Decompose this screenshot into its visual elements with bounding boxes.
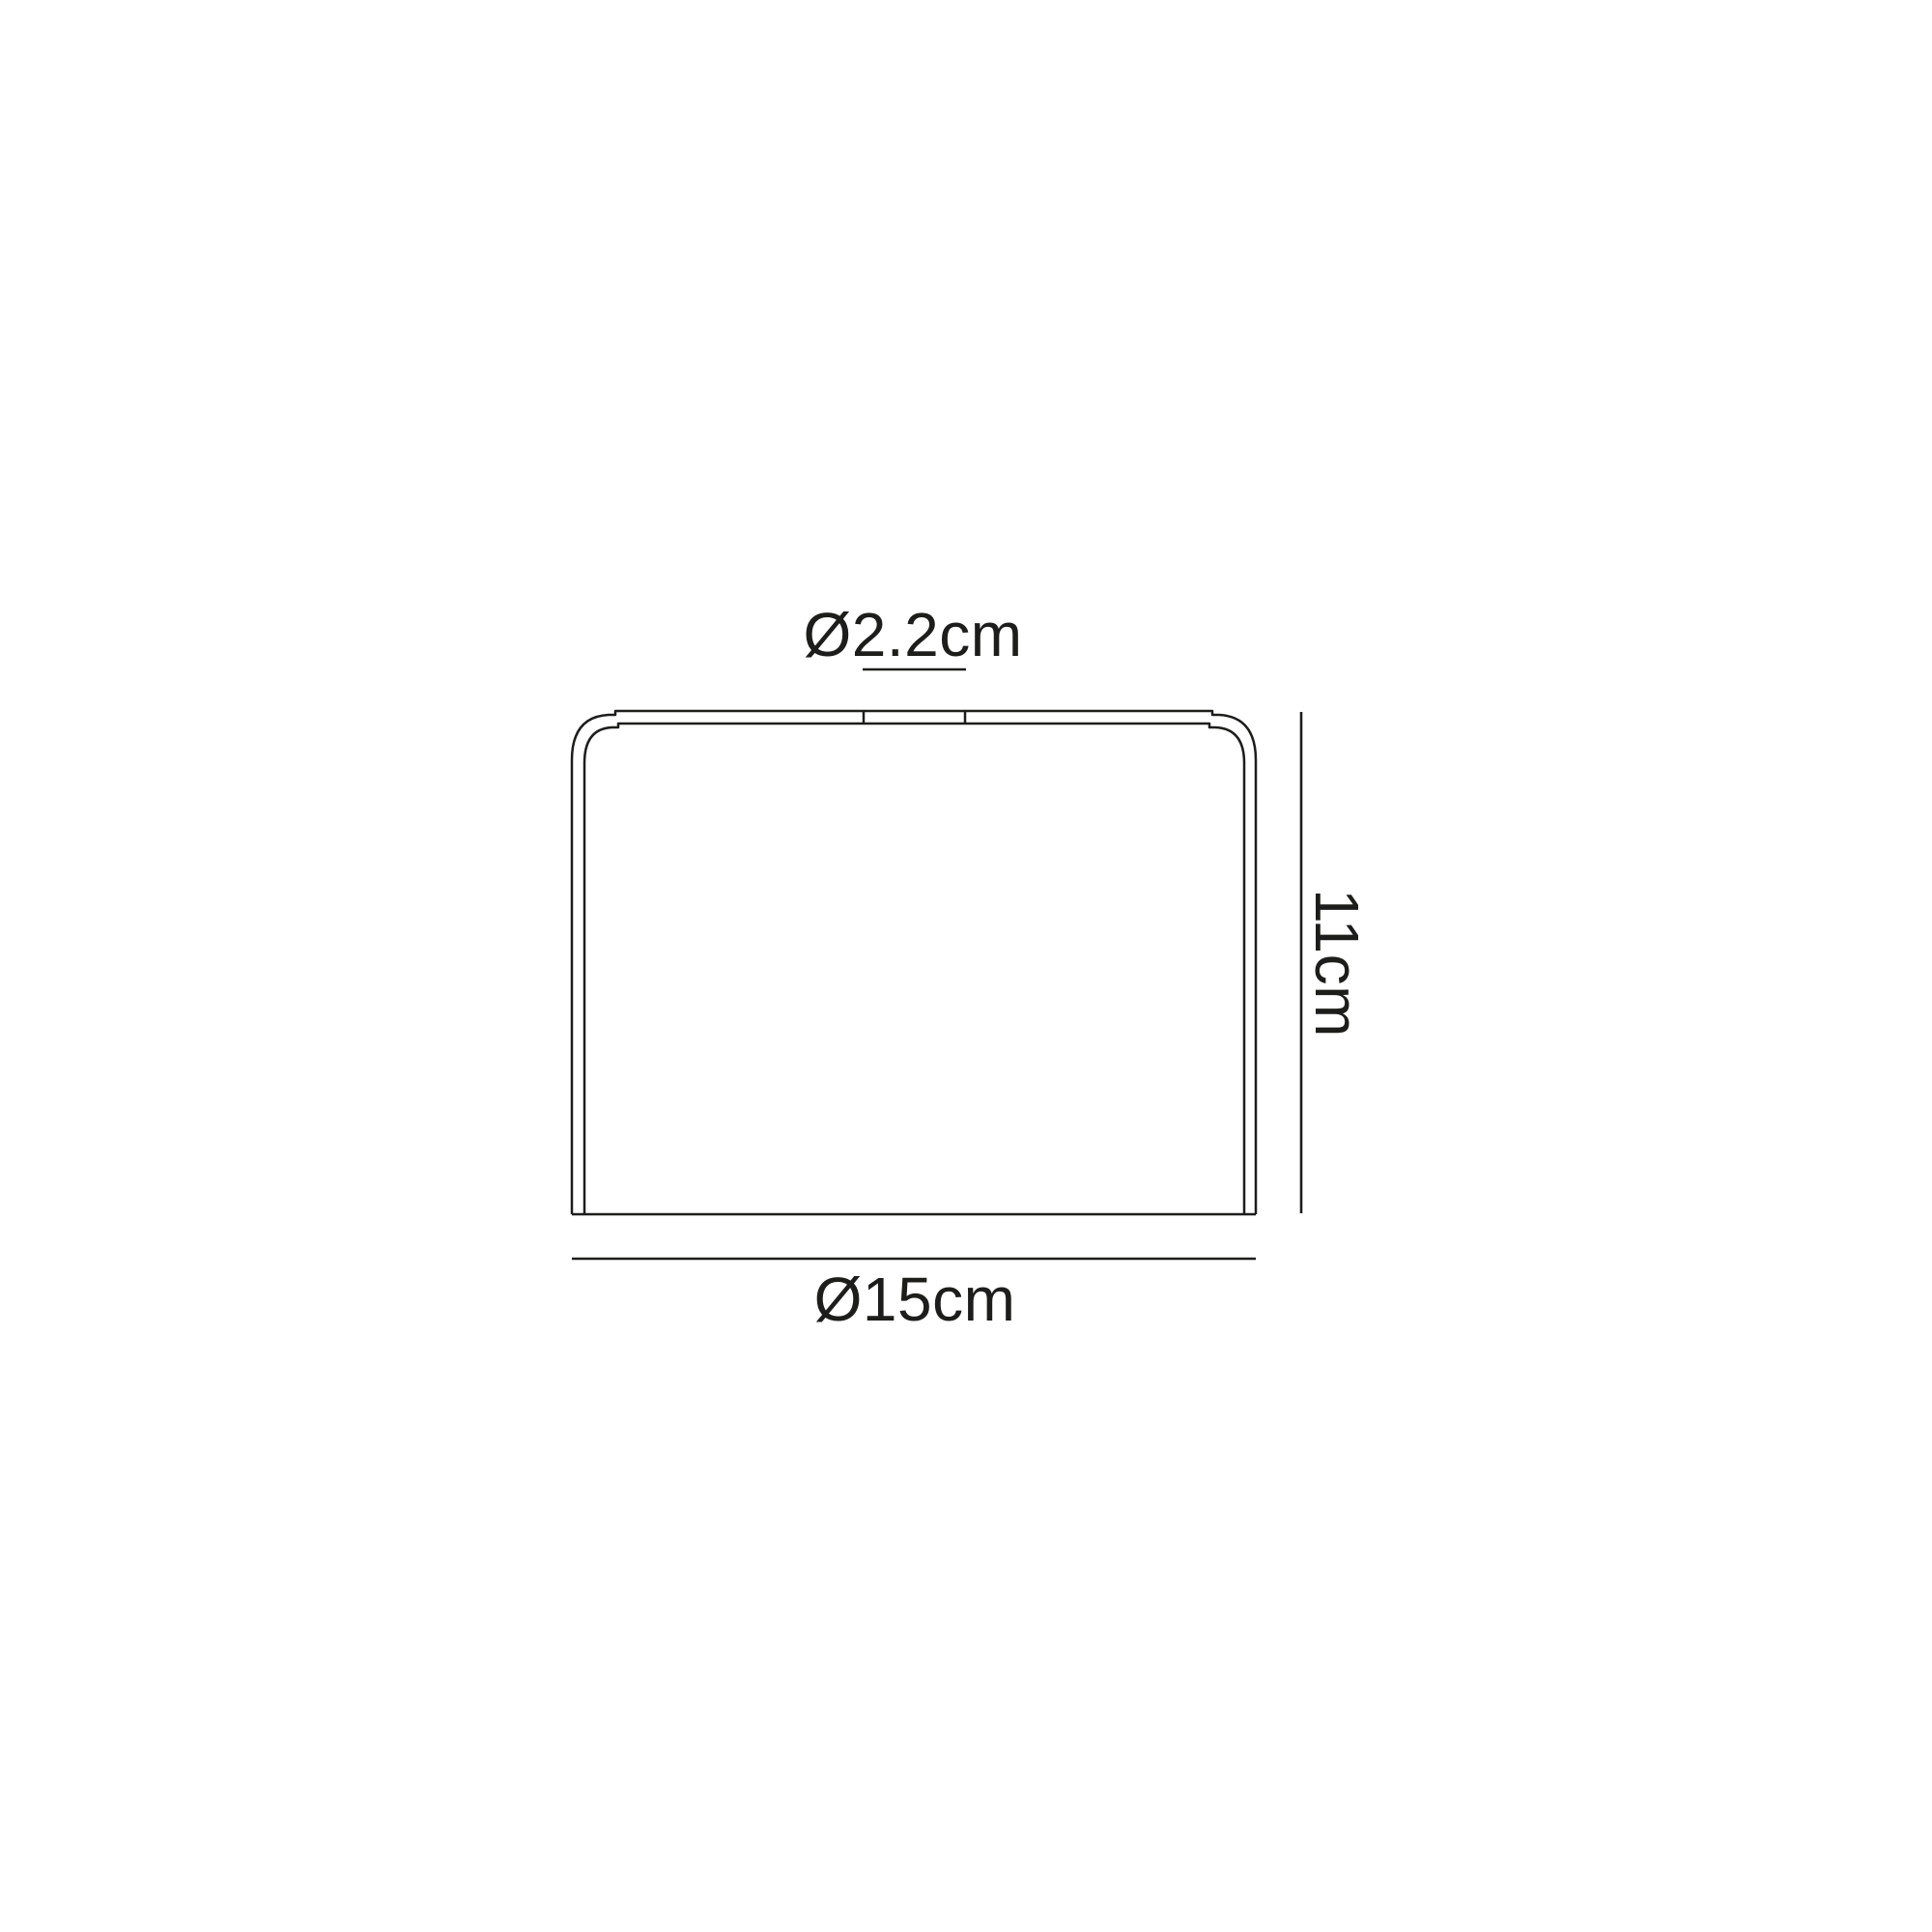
shade-outer-profile	[572, 711, 1256, 1214]
height-label: 11cm	[1306, 889, 1368, 1037]
diagram-linework	[0, 0, 1932, 1932]
top-diameter-label: Ø2.2cm	[803, 604, 1022, 666]
shade-inner-profile	[584, 724, 1244, 1214]
bottom-diameter-label: Ø15cm	[814, 1268, 1016, 1330]
lampshade-dimension-diagram: Ø2.2cm 11cm Ø15cm	[0, 0, 1932, 1932]
